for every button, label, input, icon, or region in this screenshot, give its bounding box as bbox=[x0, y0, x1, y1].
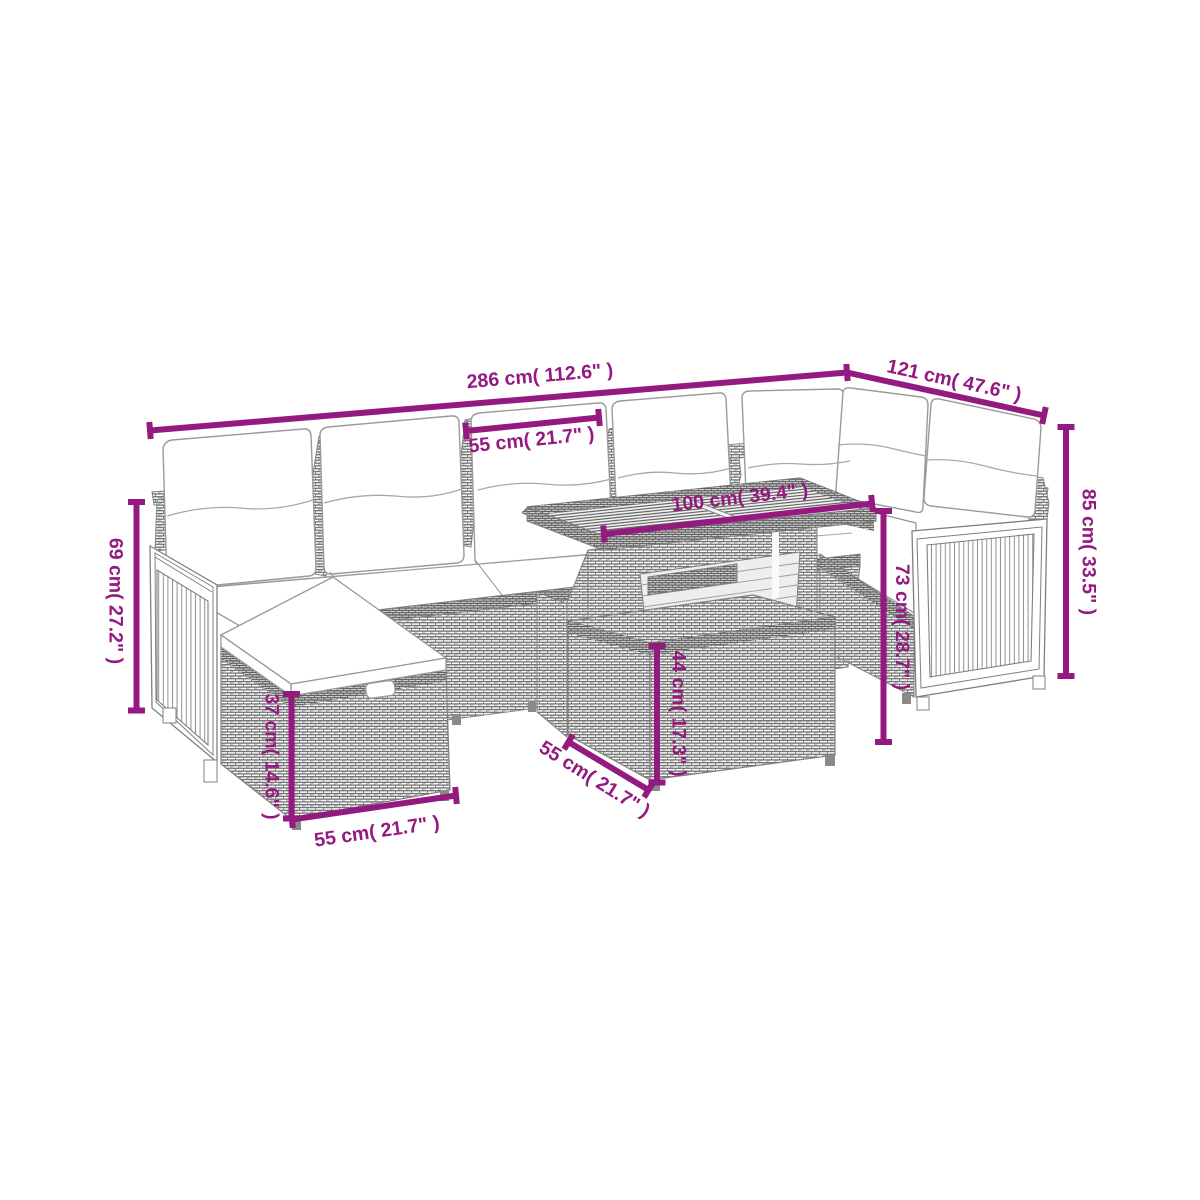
svg-text:37 cm( 14.6" ): 37 cm( 14.6" ) bbox=[260, 693, 282, 819]
svg-text:85 cm( 33.5" ): 85 cm( 33.5" ) bbox=[1077, 489, 1099, 615]
svg-text:73 cm( 28.7" ): 73 cm( 28.7" ) bbox=[891, 564, 913, 690]
svg-text:44 cm( 17.3" ): 44 cm( 17.3" ) bbox=[667, 650, 689, 776]
svg-text:69 cm( 27.2" ): 69 cm( 27.2" ) bbox=[104, 538, 126, 664]
